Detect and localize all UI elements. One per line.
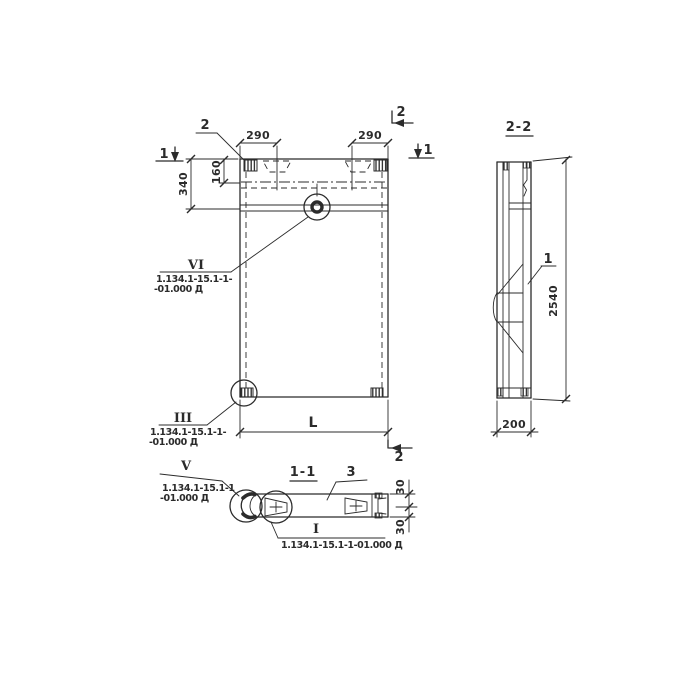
side-view-outline xyxy=(497,162,531,398)
section-mark-2-bottom: 2 xyxy=(388,440,412,465)
side-view-title: 2-2 xyxy=(506,120,533,136)
dim-30-top-text: 30 xyxy=(394,479,407,495)
dim-2540: 2540 xyxy=(533,156,572,403)
side-view-title-text: 2-2 xyxy=(506,120,533,135)
blueprint-page: 290 290 340 160 xyxy=(0,0,700,700)
part-3-label: 3 xyxy=(327,465,367,500)
hidden-recesses xyxy=(263,161,372,172)
dim-length-L: L xyxy=(236,400,392,440)
callout-v-ref2: -01.000 Д xyxy=(160,493,209,504)
callout-i-ref: 1.134.1-15.1-1-01.000 Д xyxy=(281,540,402,551)
dim-160: 160 xyxy=(210,156,240,187)
dim-340-text: 340 xyxy=(177,172,190,196)
callout-iii-mark: III xyxy=(174,411,192,426)
callout-iii: III 1.134.1-15.1-1- -01.000 Д xyxy=(149,402,236,448)
dim-30-group: 30 30 xyxy=(390,479,417,535)
section-view-title: 1-1 xyxy=(290,465,317,481)
section-mark-2-top: 2 xyxy=(392,105,413,127)
side-view-2-2: 2-2 xyxy=(491,120,572,437)
callout-vi-ref2: -01.000 Д xyxy=(154,284,203,295)
keyway-right xyxy=(345,498,367,514)
callout-v-mark: V xyxy=(180,459,192,474)
front-view: 290 290 340 160 xyxy=(149,105,434,465)
dim-30-bottom-text: 30 xyxy=(394,519,407,535)
callout-v: V 1.134.1-15.1-1 -01.000 Д xyxy=(160,459,239,504)
dim-290-right-text: 290 xyxy=(358,129,382,142)
detail-2-label: 2 xyxy=(200,118,209,133)
callout-i: I 1.134.1-15.1-1-01.000 Д xyxy=(271,522,402,551)
dim-200-text: 200 xyxy=(502,418,526,431)
section-bar-right-end xyxy=(372,493,386,518)
side-part-1-text: 1 xyxy=(543,252,552,267)
section-view-1-1: 1-1 xyxy=(160,459,417,551)
callout-i-mark: I xyxy=(313,522,319,537)
side-view-key-detail xyxy=(493,264,523,353)
dim-2540-text: 2540 xyxy=(547,285,560,317)
callout-vi: VI 1.134.1-15.1-1- -01.000 Д xyxy=(154,258,233,295)
dim-340: 340 xyxy=(177,155,240,213)
section-mark-2-bottom-text: 2 xyxy=(394,450,403,465)
section-mark-1-left-text: 1 xyxy=(159,147,168,162)
part-3-text: 3 xyxy=(346,465,355,480)
dim-200: 200 xyxy=(491,401,538,437)
callout-vi-mark: VI xyxy=(187,258,204,273)
keyway-left xyxy=(265,498,287,516)
dim-290-left-text: 290 xyxy=(246,129,270,142)
section-view-title-text: 1-1 xyxy=(290,465,317,480)
anchor-blocks xyxy=(241,160,387,397)
section-mark-1-left: 1 xyxy=(156,147,183,162)
dim-length-text: L xyxy=(309,415,318,431)
section-mark-1-right: 1 xyxy=(409,143,434,159)
callout-iii-ref2: -01.000 Д xyxy=(149,437,198,448)
detail-2-leader: 2 xyxy=(196,118,245,161)
side-view-part-1-label: 1 xyxy=(528,252,556,284)
section-mark-1-right-text: 1 xyxy=(423,143,432,158)
dim-160-text: 160 xyxy=(210,160,223,184)
technical-drawing-panel: 290 290 340 160 xyxy=(0,0,700,700)
section-mark-2-top-text: 2 xyxy=(396,105,405,120)
